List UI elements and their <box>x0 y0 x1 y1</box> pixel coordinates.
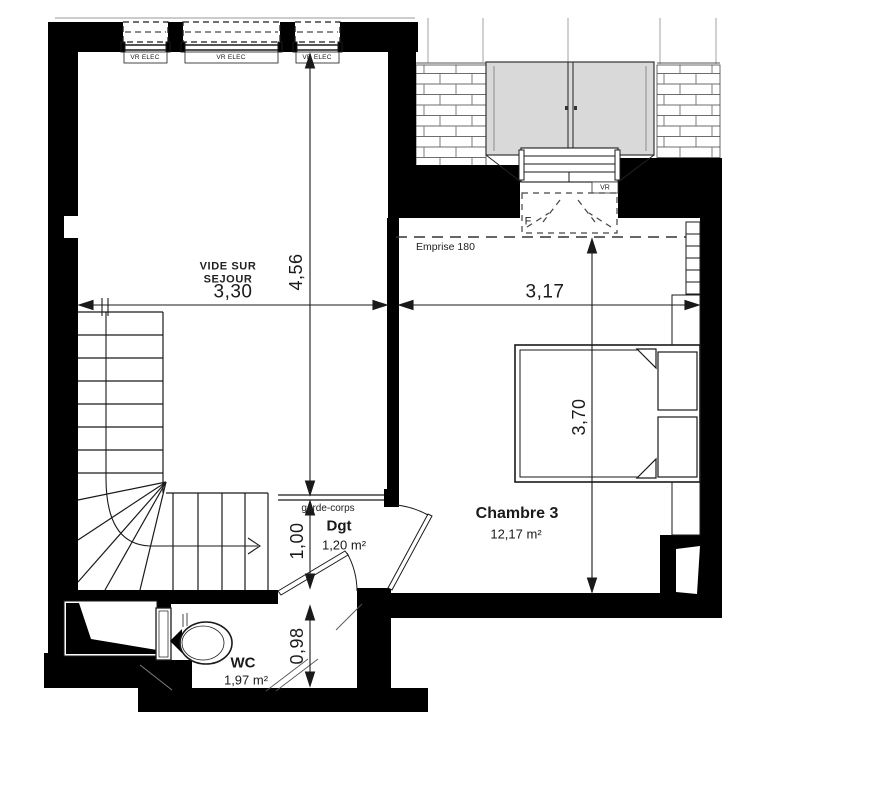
stair-winders <box>78 482 166 590</box>
window-label-vr-elec-3: VR ELEC <box>302 55 331 62</box>
dim-label-317: 3,17 <box>526 283 565 302</box>
dim-label-330: 3,30 <box>214 283 253 302</box>
room-area-chambre3: 12,17 m² <box>490 528 541 541</box>
floor-plan-drawing <box>0 0 870 800</box>
dim-label-456: 4,56 <box>287 253 305 290</box>
understair-closet <box>64 601 157 656</box>
wall-recess-bottom <box>672 480 700 535</box>
shutter-panels <box>486 62 654 155</box>
pillow <box>658 352 697 410</box>
dim-label-098: 0,98 <box>288 627 306 664</box>
window-label-vr-elec-1: VR ELEC <box>130 55 159 62</box>
room-label-chambre3: Chambre 3 <box>476 506 559 522</box>
window-frame <box>519 148 620 182</box>
room-area-wc: 1,97 m² <box>224 674 268 687</box>
dim-label-100: 1,00 <box>288 522 306 559</box>
bed <box>515 345 700 482</box>
room-label-dgt: Dgt <box>327 519 352 534</box>
stair-walk-line <box>102 298 260 554</box>
room-label-wc: WC <box>231 656 256 671</box>
pillow <box>658 417 697 477</box>
emprise-label: Emprise 180 <box>416 242 475 253</box>
staircase <box>78 298 268 590</box>
window-swing <box>522 193 617 233</box>
garde-corps-rail <box>278 495 384 500</box>
dim-4-56 <box>306 54 315 495</box>
door-chambre3 <box>388 505 432 590</box>
room-area-dgt: 1,20 m² <box>322 539 366 552</box>
vr-label: VR <box>600 185 610 192</box>
floor-plan: VIDE SUR SEJOUR 3,30 3,17 4,56 3,70 1,00… <box>0 0 870 800</box>
toilet <box>156 608 232 664</box>
window-f-label: F <box>525 217 532 228</box>
dim-label-370: 3,70 <box>570 398 588 435</box>
window-label-vr-elec-2: VR ELEC <box>216 55 245 62</box>
room-label-vide-line1: VIDE SUR <box>200 262 257 273</box>
radiator <box>686 222 700 294</box>
stair-treads-upper <box>78 312 163 493</box>
garde-corps-label: garde-corps <box>301 504 354 514</box>
